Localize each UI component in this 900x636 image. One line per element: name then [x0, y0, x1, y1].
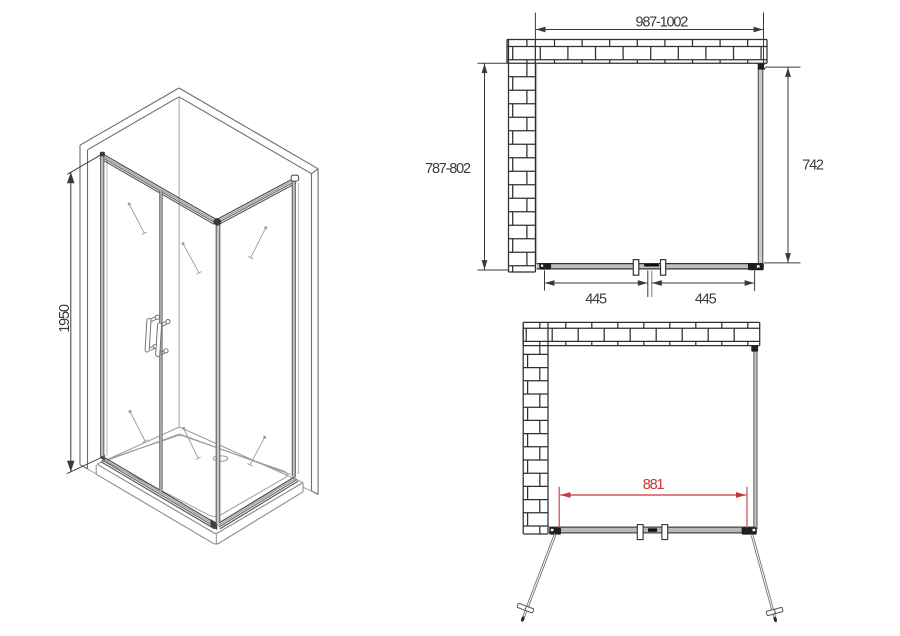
- svg-text:787-802: 787-802: [425, 161, 471, 177]
- svg-text:881: 881: [643, 477, 665, 493]
- svg-text:742: 742: [802, 157, 824, 173]
- svg-text:445: 445: [695, 292, 717, 308]
- svg-text:445: 445: [585, 292, 607, 308]
- svg-text:987-1002: 987-1002: [635, 14, 688, 30]
- svg-text:1950: 1950: [57, 304, 73, 333]
